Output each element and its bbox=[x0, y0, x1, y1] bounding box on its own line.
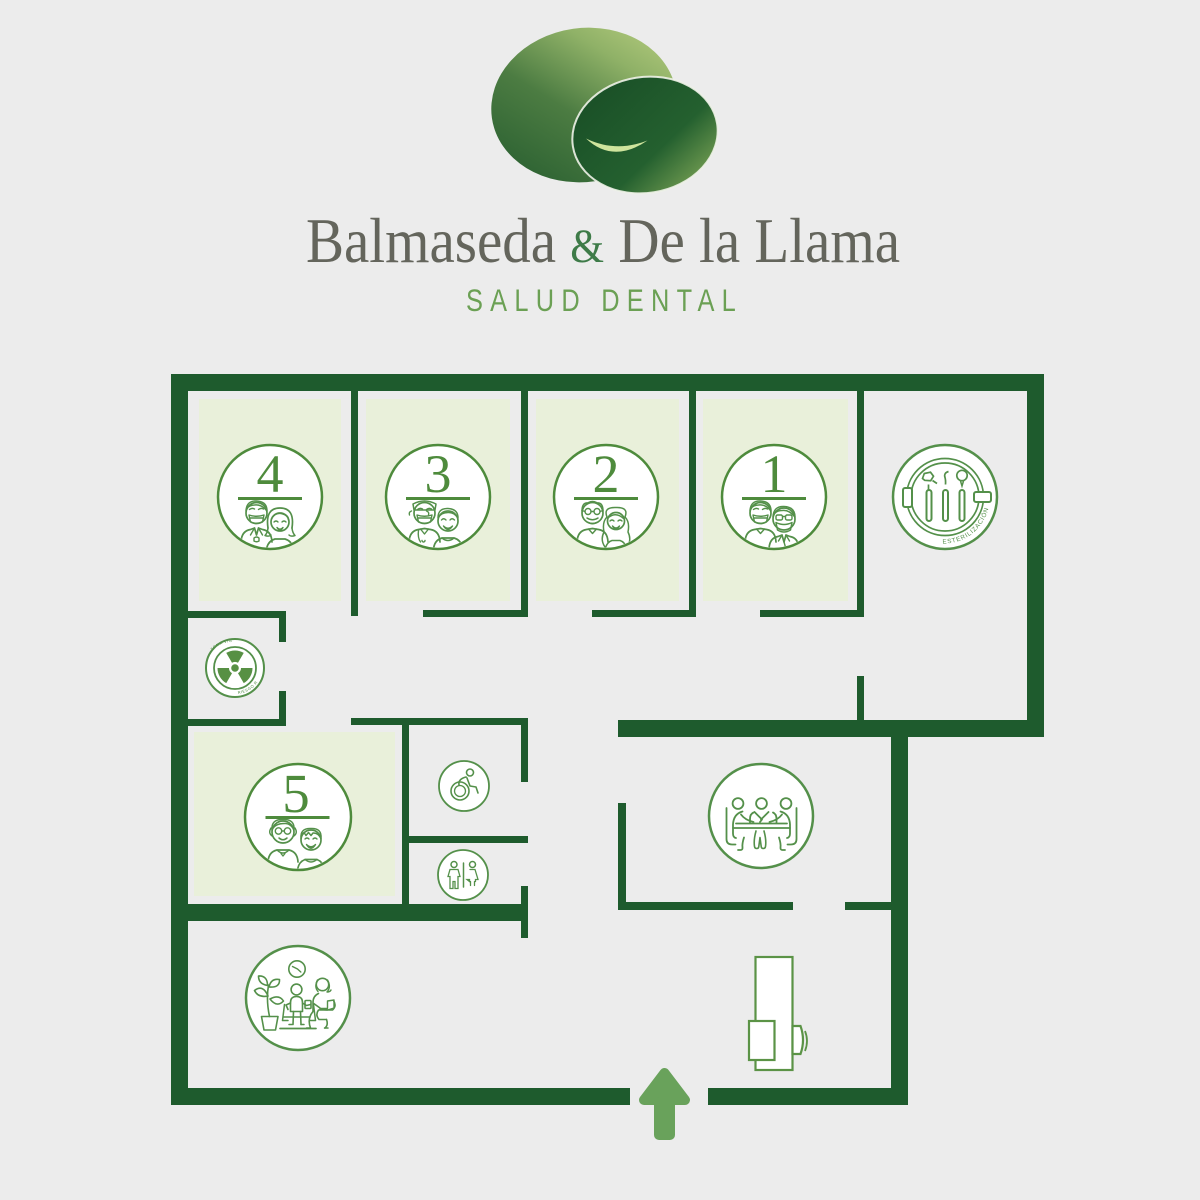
svg-text:SALUD DENTAL: SALUD DENTAL bbox=[466, 282, 743, 318]
svg-text:5: 5 bbox=[282, 763, 310, 824]
svg-text:4: 4 bbox=[257, 444, 284, 504]
svg-text:3: 3 bbox=[425, 444, 452, 504]
svg-text:2: 2 bbox=[593, 444, 620, 504]
svg-text:1: 1 bbox=[761, 444, 788, 504]
